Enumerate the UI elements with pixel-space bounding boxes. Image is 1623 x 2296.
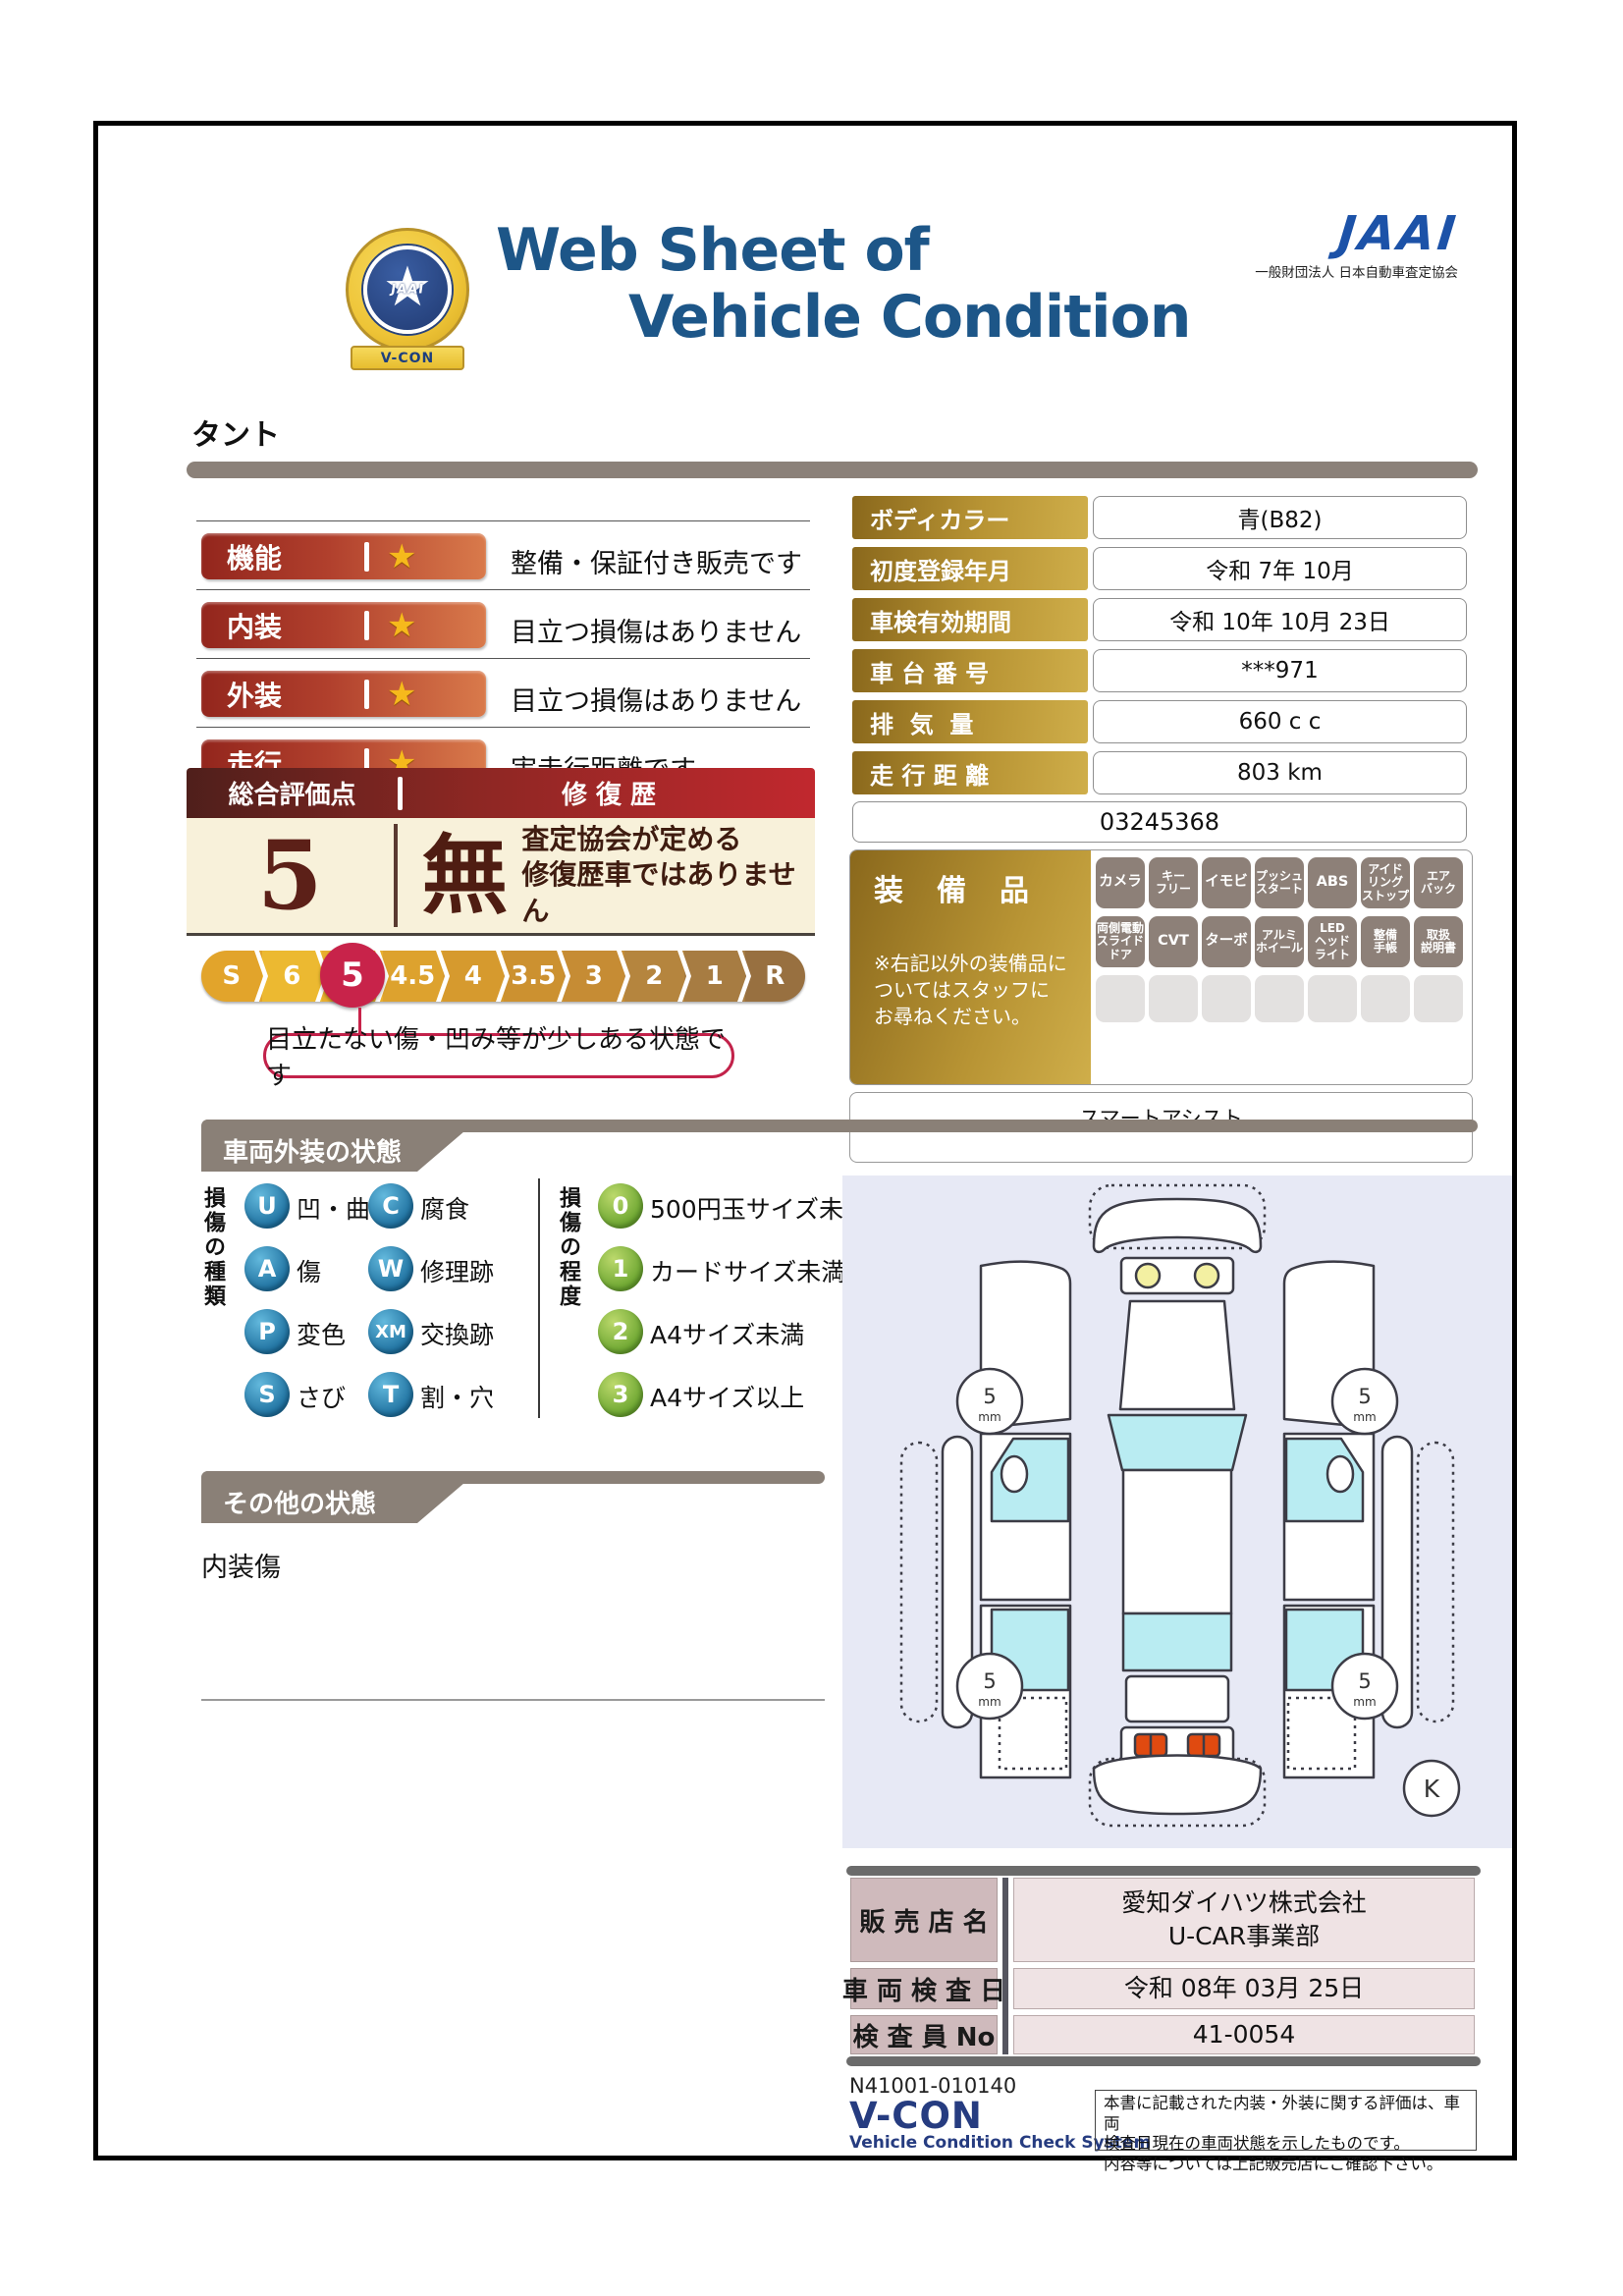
spec-label-mileage: 走 行 距 離 bbox=[852, 751, 1088, 794]
tread-unit: mm bbox=[1353, 1410, 1376, 1424]
repair-line2: 修復歴車ではありません bbox=[521, 858, 795, 926]
spec-label-displacement: 排 気 量 bbox=[852, 700, 1088, 743]
overall-score-value: 5 bbox=[187, 818, 394, 933]
badge-jaai-text: JAAI bbox=[390, 283, 425, 298]
other-condition-note: 内装傷 bbox=[201, 1546, 281, 1584]
rating-desc: 目立つ損傷はありません bbox=[511, 611, 801, 649]
scale-item-3p5: 3.5 bbox=[504, 951, 565, 1002]
scale-item-r: R bbox=[745, 951, 806, 1002]
equipment-badge-empty bbox=[1149, 975, 1198, 1022]
spec-label-body-color: ボディカラー bbox=[852, 496, 1088, 539]
damage-type-u: U bbox=[244, 1183, 290, 1229]
vcon-footer-logo: V-CON bbox=[849, 2098, 983, 2134]
vcon-badge-star-icon: ★ JAAI bbox=[363, 246, 452, 334]
tread-unit: mm bbox=[978, 1410, 1001, 1424]
section-exterior-condition: 車両外装の状態 bbox=[201, 1120, 1478, 1172]
damage-degree-0: 0 bbox=[598, 1183, 643, 1229]
tread-value: 5 bbox=[983, 1385, 996, 1408]
spec-value-first-registration: 令和 7年 10月 bbox=[1093, 547, 1467, 590]
page-title-line1: Web Sheet of bbox=[496, 216, 929, 285]
spec-label-chassis-number: 車 台 番 号 bbox=[852, 649, 1088, 692]
overall-score-title: 総合評価点 bbox=[187, 775, 398, 811]
damage-type-label: 凹・曲 bbox=[297, 1190, 370, 1226]
damage-type-xm: XM bbox=[368, 1309, 413, 1354]
scale-item-6: 6 bbox=[262, 951, 323, 1002]
damage-type-w: W bbox=[368, 1246, 413, 1291]
damage-type-label: 腐食 bbox=[420, 1190, 469, 1226]
dealer-table-top-bar bbox=[846, 1866, 1481, 1876]
star-icon: ★ bbox=[387, 678, 416, 711]
rating-separator bbox=[196, 589, 810, 590]
windshield bbox=[1109, 1415, 1246, 1470]
damage-degree-label: カードサイズ未満 bbox=[650, 1253, 845, 1288]
left-sill-dotted bbox=[901, 1443, 937, 1722]
equipment-badge-cvt: CVT bbox=[1149, 916, 1198, 967]
equipment-badge-empty bbox=[1414, 975, 1463, 1022]
damage-degree-1: 1 bbox=[598, 1246, 643, 1291]
equipment-badge-manual: 取扱 説明書 bbox=[1414, 916, 1463, 967]
scale-item-1: 1 bbox=[684, 951, 745, 1002]
dealer-value-shop: 愛知ダイハツ株式会社 U-CAR事業部 bbox=[1013, 1878, 1475, 1962]
spec-value-mileage: 803 km bbox=[1093, 751, 1467, 794]
dealer-table-bottom-bar bbox=[846, 2056, 1481, 2066]
roof bbox=[1123, 1470, 1231, 1613]
rating-pill-interior: 内装 ★ bbox=[201, 602, 486, 648]
rating-desc: 整備・保証付き販売です bbox=[511, 542, 802, 580]
equipment-badge-empty bbox=[1308, 975, 1357, 1022]
equipment-badge-camera: カメラ bbox=[1096, 857, 1145, 908]
equipment-badge-pushstart: プッシュ スタート bbox=[1255, 857, 1304, 908]
tailgate bbox=[1126, 1676, 1228, 1722]
spec-value-inspection-validity: 令和 10年 10月 23日 bbox=[1093, 598, 1467, 641]
repair-history-desc: 査定協会が定める 修復歴車ではありません bbox=[521, 822, 815, 929]
dealer-value-inspection-date: 令和 08年 03月 25日 bbox=[1013, 1968, 1475, 2009]
damage-type-c: C bbox=[368, 1183, 413, 1229]
rating-label: 外装 bbox=[227, 675, 356, 714]
dealer-table-divider bbox=[1002, 1878, 1008, 2054]
rating-separator bbox=[196, 520, 810, 521]
headlight-left bbox=[1136, 1264, 1160, 1287]
damage-type-p: P bbox=[244, 1309, 290, 1354]
car-damage-diagram: 5 mm 5 mm 5 mm 5 mm K bbox=[842, 1175, 1512, 1848]
jaai-logo: JAAI bbox=[1335, 206, 1461, 261]
vcon-badge-logo: ★ JAAI bbox=[346, 228, 469, 352]
rear-bumper bbox=[1094, 1756, 1261, 1815]
rear-window bbox=[1123, 1613, 1231, 1670]
grade-marker: K bbox=[1424, 1775, 1440, 1803]
rating-pill-function: 機能 ★ bbox=[201, 533, 486, 579]
damage-degree-label: A4サイズ未満 bbox=[650, 1316, 804, 1351]
spec-label-first-registration: 初度登録年月 bbox=[852, 547, 1088, 590]
rating-label: 内装 bbox=[227, 606, 356, 645]
dealer-label-inspector-no: 検 査 員 No bbox=[850, 2015, 998, 2054]
dealer-value-inspector-no: 41-0054 bbox=[1013, 2015, 1475, 2054]
equipment-badge-empty bbox=[1202, 975, 1251, 1022]
rating-pill-exterior: 外装 ★ bbox=[201, 671, 486, 717]
repair-history-mark: 無 bbox=[421, 833, 508, 919]
divider-bar bbox=[187, 462, 1478, 478]
damage-type-label: 修理跡 bbox=[420, 1253, 494, 1288]
spec-value-displacement: 660 c c bbox=[1093, 700, 1467, 743]
equipment-badge-empty bbox=[1096, 975, 1145, 1022]
dealer-label-shop: 販 売 店 名 bbox=[850, 1878, 998, 1962]
repair-history: 無 査定協会が定める 修復歴車ではありません bbox=[398, 818, 815, 933]
score-callout: 目立たない傷・凹み等が少しある状態です bbox=[263, 1033, 734, 1078]
dealer-label-inspection-date: 車 両 検 査 日 bbox=[850, 1968, 998, 2009]
damage-type-label: 傷 bbox=[297, 1253, 321, 1288]
damage-type-label: 交換跡 bbox=[420, 1316, 494, 1351]
equipment-note: ※右記以外の装備品に ついてはスタッフに お尋ねください。 bbox=[874, 951, 1091, 1030]
right-sill-dotted bbox=[1418, 1443, 1453, 1722]
score-scale: S 6 4.5 4 3.5 3 2 1 R 5 bbox=[201, 951, 805, 1002]
equipment-badge-empty bbox=[1255, 975, 1304, 1022]
star-icon: ★ bbox=[387, 540, 416, 574]
spec-value-body-color: 青(B82) bbox=[1093, 496, 1467, 539]
hood bbox=[1120, 1301, 1234, 1409]
rating-label: 機能 bbox=[227, 537, 356, 576]
disclaimer-box: 本書に記載された内装・外装に関する評価は、車両 検査日現在の車両状態を示したもの… bbox=[1095, 2090, 1477, 2151]
rating-separator bbox=[196, 727, 810, 728]
equipment-badge-immobilizer: イモビ bbox=[1202, 857, 1251, 908]
tread-unit: mm bbox=[978, 1695, 1001, 1709]
equipment-panel: 装 備 品 ※右記以外の装備品に ついてはスタッフに お尋ねください。 bbox=[850, 850, 1091, 1084]
scale-item-4p5: 4.5 bbox=[383, 951, 444, 1002]
damage-type-t: T bbox=[368, 1372, 413, 1417]
equipment-badge-empty bbox=[1361, 975, 1410, 1022]
equipment-badge-powerslide: 両側電動 スライド ドア bbox=[1096, 916, 1145, 967]
headlight-right bbox=[1195, 1264, 1218, 1287]
damage-degree-3: 3 bbox=[598, 1372, 643, 1417]
legend-divider bbox=[538, 1178, 540, 1418]
tread-unit: mm bbox=[1353, 1695, 1376, 1709]
sheet-page: ★ JAAI V-CON Web Sheet of Vehicle Condit… bbox=[93, 121, 1517, 2160]
equipment-badge-ledheadlight: LED ヘッド ライト bbox=[1308, 916, 1357, 967]
vehicle-condition-sheet: ★ JAAI V-CON Web Sheet of Vehicle Condit… bbox=[0, 0, 1623, 2296]
damage-degree-title: 損傷の程度 bbox=[552, 1186, 583, 1309]
damage-degree-2: 2 bbox=[598, 1309, 643, 1354]
equipment-badge-airbag: エア バック bbox=[1414, 857, 1463, 908]
repair-history-title: 修 復 歴 bbox=[403, 775, 815, 811]
badge-ribbon-label: V-CON bbox=[381, 351, 435, 366]
jaai-subtitle: 一般財団法人 日本自動車査定協会 bbox=[1255, 261, 1458, 281]
damage-type-label: 割・穴 bbox=[420, 1379, 494, 1414]
right-mirror bbox=[1327, 1456, 1353, 1492]
damage-type-s: S bbox=[244, 1372, 290, 1417]
equipment-badge-alloywheel: アルミ ホイール bbox=[1255, 916, 1304, 967]
equipment-title: 装 備 品 bbox=[874, 866, 1091, 909]
section-other-condition: その他の状態 bbox=[201, 1471, 825, 1523]
notes-underline bbox=[201, 1699, 825, 1701]
equipment-badge-abs: ABS bbox=[1308, 857, 1357, 908]
damage-type-label: さび bbox=[297, 1379, 346, 1414]
scale-item-3: 3 bbox=[564, 951, 624, 1002]
section-title: 車両外装の状態 bbox=[223, 1132, 402, 1169]
page-title-line2: Vehicle Condition bbox=[628, 283, 1191, 352]
damage-degree-label: 500円玉サイズ未満 bbox=[650, 1190, 868, 1226]
rating-separator bbox=[196, 658, 810, 659]
damage-type-title: 損傷の種類 bbox=[196, 1186, 228, 1309]
tread-value: 5 bbox=[983, 1669, 996, 1693]
front-bumper bbox=[1094, 1199, 1261, 1252]
vcon-badge-ribbon: V-CON bbox=[351, 346, 464, 370]
damage-type-a: A bbox=[244, 1246, 290, 1291]
repair-line1: 査定協会が定める bbox=[521, 823, 741, 855]
rating-desc: 目立つ損傷はありません bbox=[511, 680, 801, 718]
scale-item-2: 2 bbox=[624, 951, 685, 1002]
scale-item-4: 4 bbox=[443, 951, 504, 1002]
star-icon: ★ bbox=[387, 609, 416, 642]
selected-score-marker: 5 bbox=[320, 943, 385, 1008]
pill-divider bbox=[364, 680, 369, 709]
pill-divider bbox=[364, 542, 369, 572]
spec-value-chassis-number: ***971 bbox=[1093, 649, 1467, 692]
callout-connector bbox=[358, 1008, 361, 1035]
overall-score-header: 総合評価点 修 復 歴 bbox=[187, 768, 815, 818]
equipment-badge-keyfree: キー フリー bbox=[1149, 857, 1198, 908]
equipment-badge-idlingstop: アイド リング ストップ bbox=[1361, 857, 1410, 908]
tread-value: 5 bbox=[1358, 1385, 1371, 1408]
tread-value: 5 bbox=[1358, 1669, 1371, 1693]
damage-type-label: 変色 bbox=[297, 1316, 346, 1351]
scale-item-s: S bbox=[201, 951, 262, 1002]
left-mirror bbox=[1001, 1456, 1027, 1492]
damage-degree-label: A4サイズ以上 bbox=[650, 1379, 804, 1414]
equipment-badge-servicebook: 整備 手帳 bbox=[1361, 916, 1410, 967]
car-exploded-view: 5 mm 5 mm 5 mm 5 mm K bbox=[842, 1175, 1512, 1848]
overall-score-body: 5 無 査定協会が定める 修復歴車ではありません bbox=[187, 818, 815, 936]
spec-label-inspection-validity: 車検有効期間 bbox=[852, 598, 1088, 641]
section-title: その他の状態 bbox=[223, 1484, 376, 1520]
pill-divider bbox=[364, 611, 369, 640]
equipment-badge-turbo: ターボ bbox=[1202, 916, 1251, 967]
vehicle-name: タント bbox=[191, 410, 280, 454]
sheet-number: 03245368 bbox=[852, 801, 1467, 843]
